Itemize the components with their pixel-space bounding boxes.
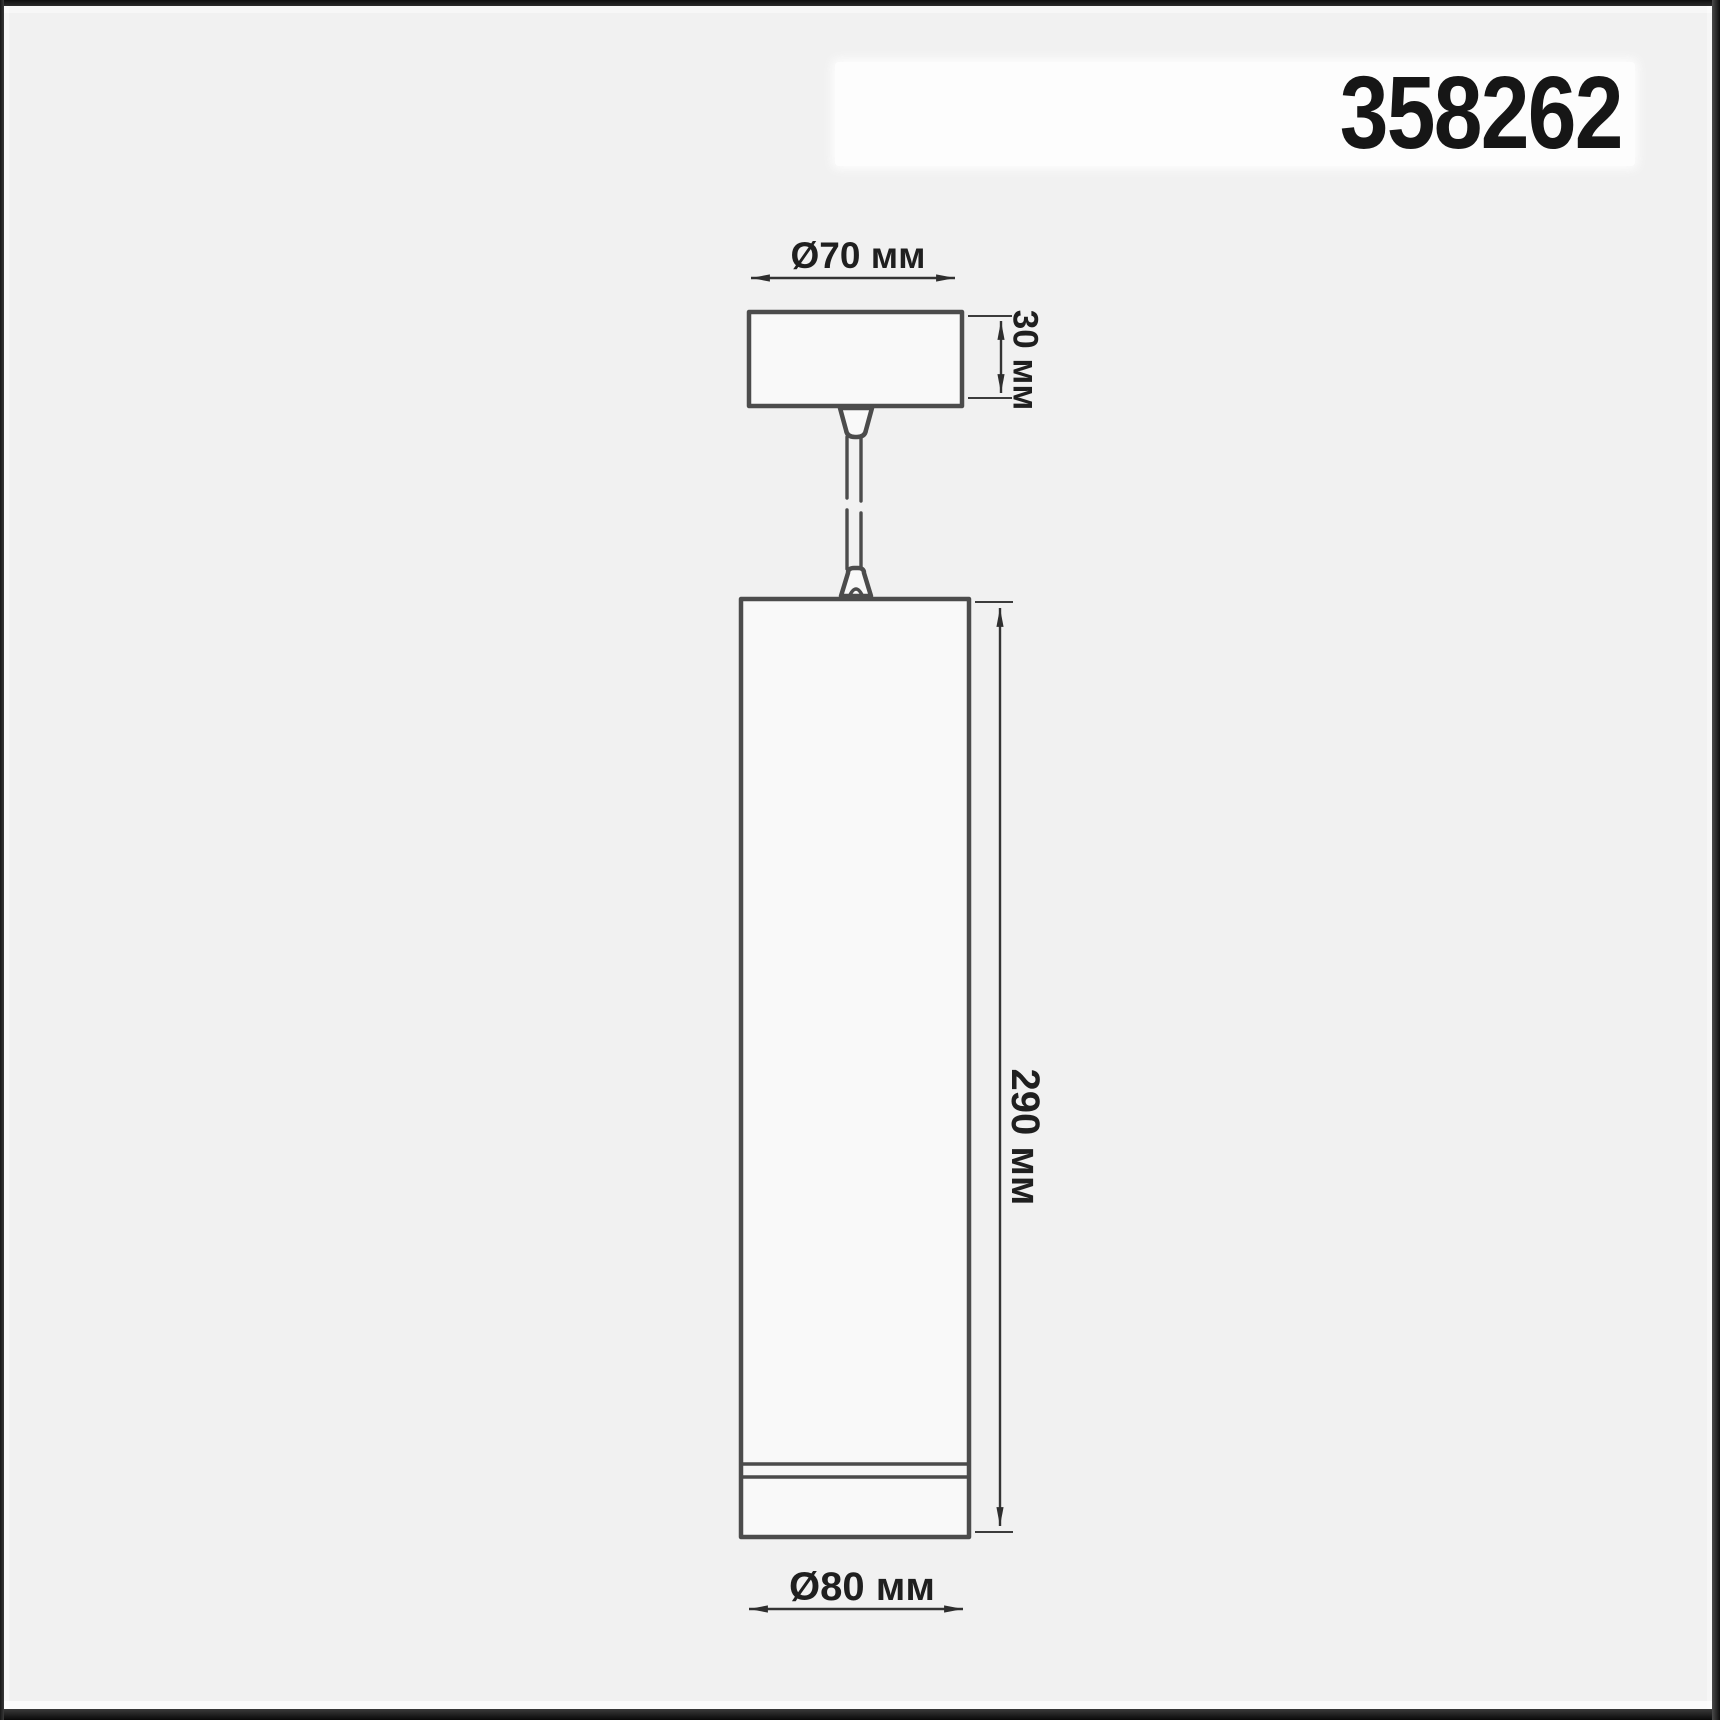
lower-cord-grip	[841, 568, 871, 596]
upper-cord-grip	[840, 408, 872, 437]
diagram-canvas: 358262 Ø70 мм 30 мм 290 мм	[0, 0, 1720, 1720]
frame-border-bottom	[0, 1709, 1720, 1720]
frame-border-top	[0, 0, 1720, 6]
frame-border-right	[1712, 0, 1720, 1720]
body-outline	[741, 599, 969, 1537]
edge-glow-left	[4, 0, 9, 1720]
dim-label-body-height: 290 мм	[1005, 1068, 1045, 1205]
dim-label-body-diameter: Ø80 мм	[789, 1567, 935, 1607]
frame-border-left	[0, 0, 4, 1720]
dim-body-height-extensions	[975, 602, 1013, 1532]
edge-glow-top	[0, 6, 1720, 13]
suspension-wire	[847, 437, 861, 569]
dim-label-canopy-width: Ø70 мм	[791, 237, 926, 274]
edge-glow-bottom	[0, 1701, 1720, 1709]
canopy-outline	[749, 312, 962, 406]
dim-label-canopy-height: 30 мм	[1008, 310, 1043, 410]
